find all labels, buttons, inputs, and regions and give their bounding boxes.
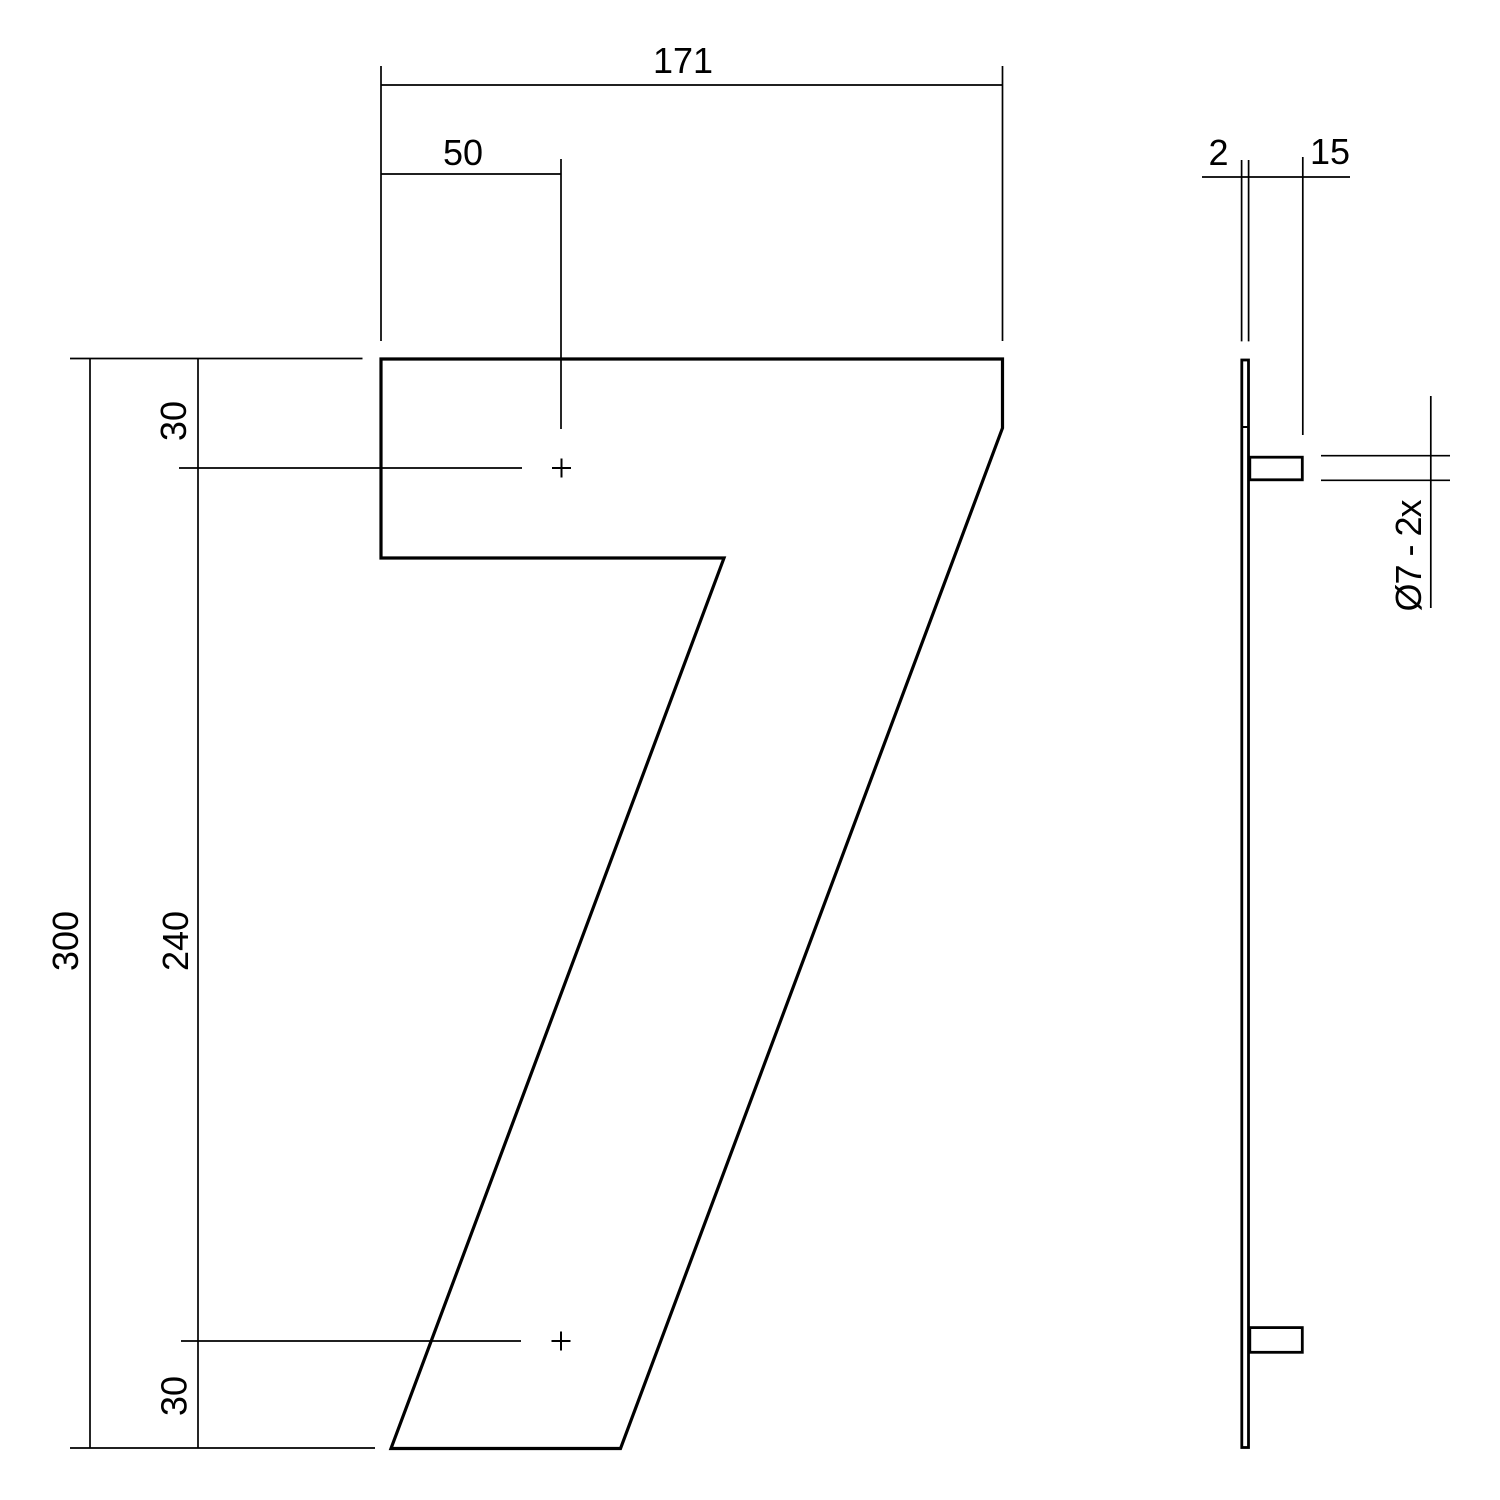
svg-text:240: 240 [155,911,196,971]
svg-text:15: 15 [1310,131,1350,172]
svg-text:171: 171 [653,40,713,81]
svg-text:30: 30 [154,1376,195,1416]
svg-text:300: 300 [45,911,86,971]
svg-text:2: 2 [1208,132,1228,173]
svg-text:30: 30 [153,401,194,441]
svg-text:50: 50 [443,132,483,173]
svg-text:Ø7 - 2x: Ø7 - 2x [1388,499,1429,611]
